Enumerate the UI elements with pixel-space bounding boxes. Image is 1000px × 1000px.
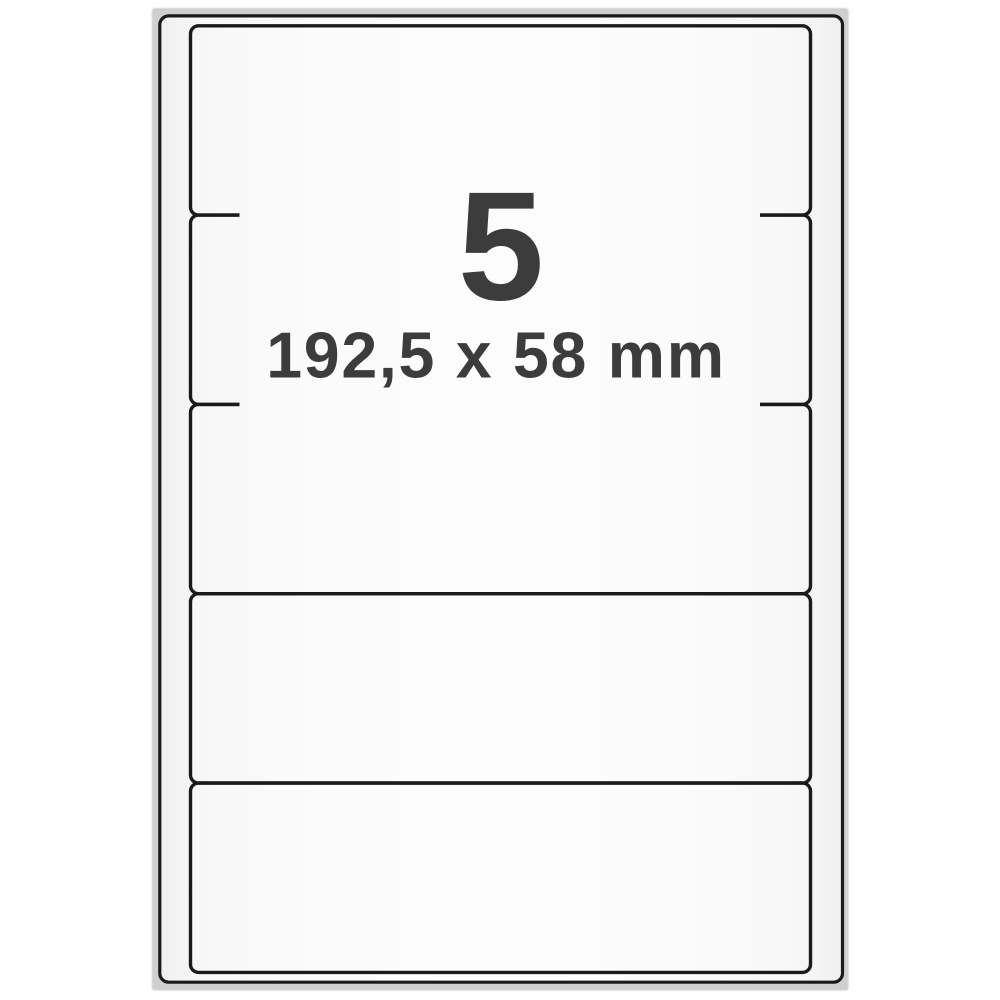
svg-text:5: 5: [458, 160, 544, 333]
svg-text:192,5 x 58 mm: 192,5 x 58 mm: [266, 320, 726, 392]
